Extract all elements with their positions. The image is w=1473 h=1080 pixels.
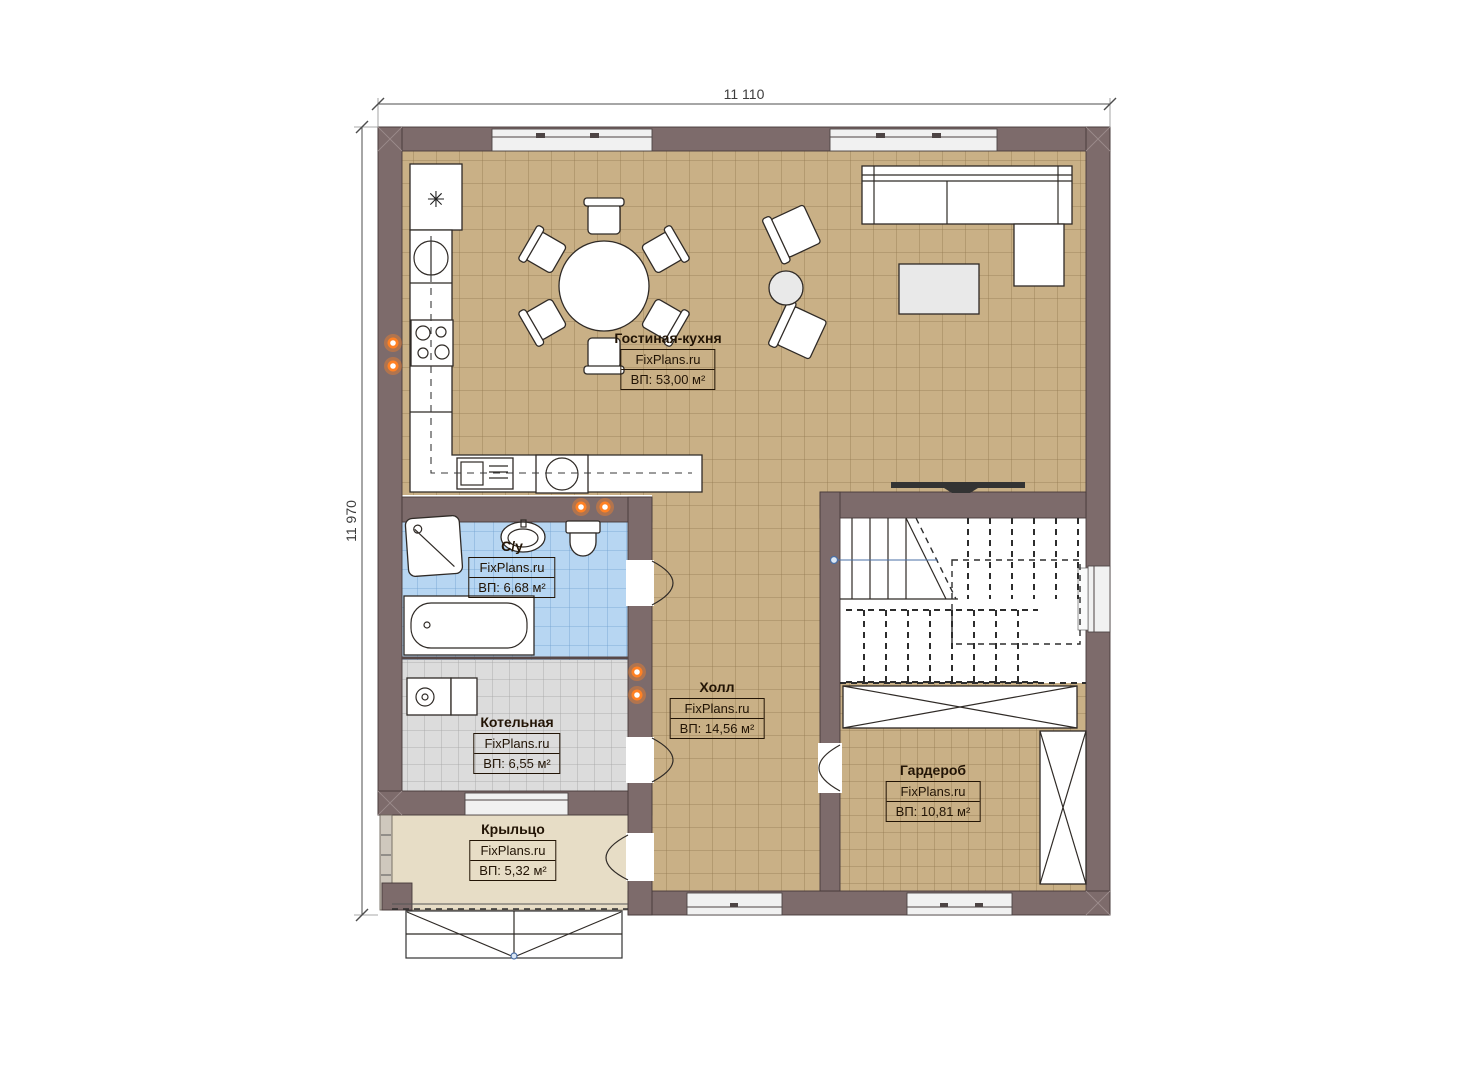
room-info-box: FixPlans.ru ВП: 14,56 м² xyxy=(670,698,765,739)
closet-right xyxy=(1040,731,1086,884)
boiler-equipment xyxy=(407,678,477,715)
window-top-left xyxy=(492,129,652,151)
room-label-wardrobe: Гардероб FixPlans.ru ВП: 10,81 м² xyxy=(886,762,981,822)
brand-link[interactable]: FixPlans.ru xyxy=(622,350,715,369)
bathtub xyxy=(404,596,534,655)
room-area: ВП: 5,32 м² xyxy=(470,860,555,880)
door-opening-wardrobe xyxy=(818,743,842,793)
room-area: ВП: 14,56 м² xyxy=(671,718,764,738)
room-info-box: FixPlans.ru ВП: 5,32 м² xyxy=(469,840,556,881)
stair-treads-solid xyxy=(852,518,906,599)
room-label-hall: Холл FixPlans.ru ВП: 14,56 м² xyxy=(670,679,765,739)
room-name: Гостиная-кухня xyxy=(614,330,721,346)
wall-hall-right xyxy=(820,492,840,891)
porch-steps xyxy=(406,911,622,959)
plumbing-marker xyxy=(628,663,646,681)
room-info-box: FixPlans.ru ВП: 10,81 м² xyxy=(886,781,981,822)
stair-landing-dashed xyxy=(952,560,1080,644)
stair-treads-dashed-lower xyxy=(864,610,1018,682)
dining-table xyxy=(559,241,649,331)
wall-top xyxy=(378,127,1110,151)
window-bottom-hall xyxy=(687,893,782,915)
staircase xyxy=(831,518,1081,682)
side-table xyxy=(769,271,803,305)
room-label-living-kitchen: Гостиная-кухня FixPlans.ru ВП: 53,00 м² xyxy=(614,330,721,390)
stair-break-line xyxy=(906,518,946,599)
coffee-table xyxy=(899,264,979,314)
wall-right xyxy=(1086,127,1110,915)
brand-link[interactable]: FixPlans.ru xyxy=(470,841,555,860)
dining-chair xyxy=(584,198,624,234)
room-area: ВП: 6,55 м² xyxy=(474,753,559,773)
room-name: Крыльцо xyxy=(481,821,545,837)
dimension-height-label: 11 970 xyxy=(343,500,359,542)
room-name: С/у xyxy=(501,538,523,554)
fridge-star-icon: ✳ xyxy=(427,187,445,212)
window-top-right xyxy=(830,129,997,151)
plumbing-marker xyxy=(572,498,590,516)
room-info-box: FixPlans.ru ВП: 53,00 м² xyxy=(621,349,716,390)
dimension-top: 11 110 xyxy=(372,86,1116,127)
room-name: Холл xyxy=(699,679,734,695)
stair-lower-bounds xyxy=(846,610,1038,682)
plumbing-marker xyxy=(384,357,402,375)
room-area: ВП: 6,68 м² xyxy=(469,577,554,597)
room-name: Гардероб xyxy=(900,762,966,778)
room-info-box: FixPlans.ru ВП: 6,55 м² xyxy=(473,733,560,774)
floor-plan-drawing: ✳ xyxy=(0,0,1473,1080)
door-opening-boiler xyxy=(626,737,654,783)
room-area: ВП: 10,81 м² xyxy=(887,801,980,821)
porch-corner-post xyxy=(382,883,412,910)
stair-treads-dashed-upper xyxy=(968,518,1078,599)
room-name: Котельная xyxy=(480,714,553,730)
brand-link[interactable]: FixPlans.ru xyxy=(671,699,764,718)
window-bottom-wardrobe xyxy=(907,893,1012,915)
room-label-bathroom: С/у FixPlans.ru ВП: 6,68 м² xyxy=(468,538,555,598)
stair-direction-start xyxy=(831,557,838,564)
plumbing-marker xyxy=(384,334,402,352)
stove xyxy=(411,320,453,366)
floor-plan-page: ✳ xyxy=(0,0,1473,1080)
plumbing-marker xyxy=(596,498,614,516)
room-area: ВП: 53,00 м² xyxy=(622,369,715,389)
brand-link[interactable]: FixPlans.ru xyxy=(887,782,980,801)
brand-link[interactable]: FixPlans.ru xyxy=(469,558,554,577)
room-label-porch: Крыльцо FixPlans.ru ВП: 5,32 м² xyxy=(469,821,556,881)
wall-stair-top xyxy=(820,492,1086,518)
washing-machine xyxy=(405,515,463,577)
window-stairwell-right xyxy=(1078,566,1110,632)
plumbing-marker xyxy=(628,686,646,704)
prep-sink xyxy=(536,455,588,493)
window-boiler-porch xyxy=(465,793,568,815)
brand-link[interactable]: FixPlans.ru xyxy=(474,734,559,753)
room-info-box: FixPlans.ru ВП: 6,68 м² xyxy=(468,557,555,598)
room-label-boiler: Котельная FixPlans.ru ВП: 6,55 м² xyxy=(473,714,560,774)
closet-top xyxy=(843,686,1077,728)
dimension-width-label: 11 110 xyxy=(724,86,765,102)
door-opening-bathroom xyxy=(626,560,654,606)
wall-left xyxy=(378,127,402,815)
door-opening-entrance xyxy=(626,833,654,881)
dimension-left: 11 970 xyxy=(343,121,378,921)
